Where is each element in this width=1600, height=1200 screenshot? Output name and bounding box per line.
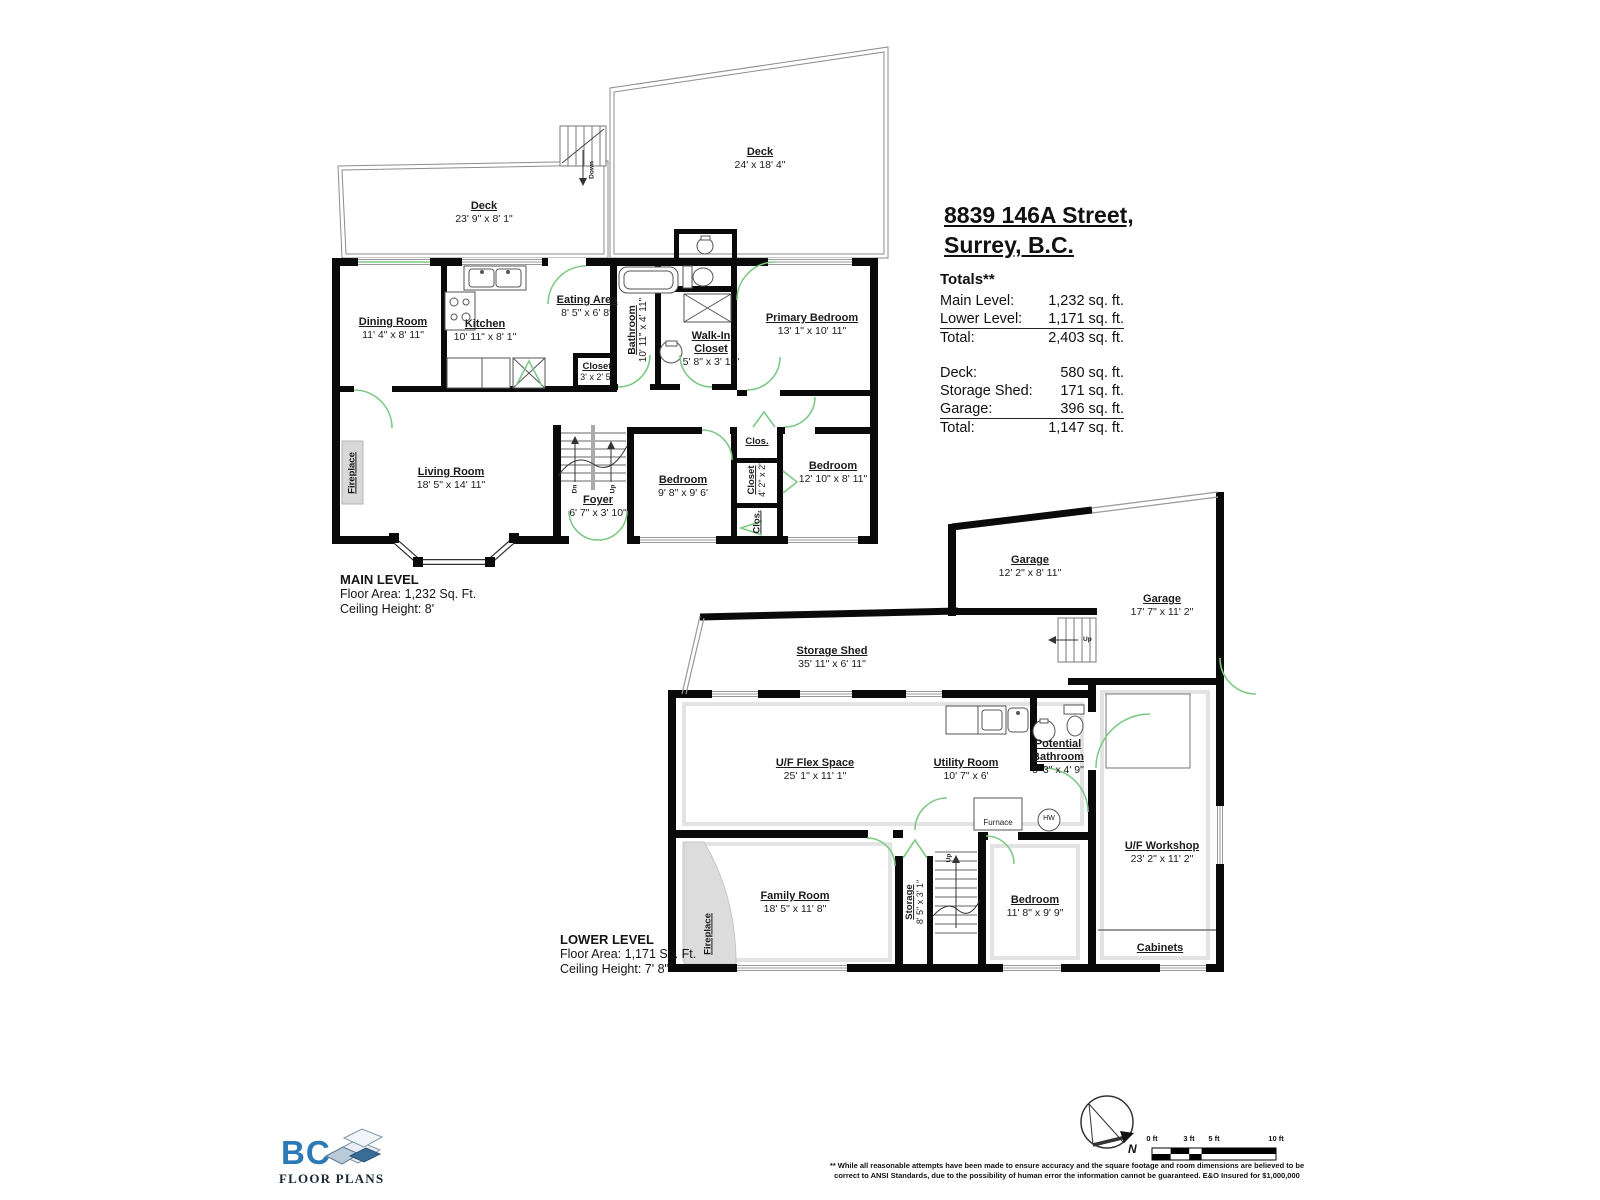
totals-row-deck: Deck:580 sq. ft. bbox=[940, 364, 1124, 382]
room-label-walkin: Walk-In Closet 5' 8" x 3' 11" bbox=[683, 330, 740, 368]
bay-window bbox=[389, 533, 519, 567]
room-label-bedroom2: Bedroom 9' 8" x 9' 6' bbox=[658, 474, 708, 499]
main-level-title-block: MAIN LEVEL Floor Area: 1,232 Sq. Ft. Cei… bbox=[340, 572, 476, 617]
totals-row-main: Main Level:1,232 sq. ft. bbox=[940, 292, 1124, 310]
main-deck-outlines bbox=[338, 47, 888, 258]
room-label-clos-bottom: Clos. bbox=[751, 510, 762, 533]
room-label-eating: Eating Area 8' 5" x 6' 8" bbox=[557, 294, 618, 319]
scale-label-3ft: 3 ft bbox=[1183, 1134, 1194, 1143]
totals-row-shed: Storage Shed:171 sq. ft. bbox=[940, 382, 1124, 400]
room-label-flex: U/F Flex Space 25' 1" x 11' 1" bbox=[776, 757, 854, 782]
room-label-fireplace-main: Fireplace bbox=[346, 452, 357, 494]
room-label-closet-vertical: Closet 4' 2" x 2' bbox=[746, 463, 768, 497]
totals-table: Totals** Main Level:1,232 sq. ft. Lower … bbox=[940, 271, 1124, 437]
room-label-primary: Primary Bedroom 13' 1" x 10' 11" bbox=[766, 312, 858, 337]
room-label-kitchen: Kitchen 10' 11" x 8' 1" bbox=[454, 318, 517, 343]
room-label-shed: Storage Shed 35' 11" x 6' 11" bbox=[797, 645, 868, 670]
address-line1: 8839 146A Street, bbox=[944, 200, 1134, 230]
floor-plan-page: 8839 146A Street, Surrey, B.C. Totals** … bbox=[0, 0, 1600, 1200]
scale-label-10ft: 10 ft bbox=[1268, 1134, 1283, 1143]
stairs-up-label-garage: Up bbox=[1083, 636, 1092, 643]
stairs-up-label-main: Up bbox=[610, 485, 617, 494]
scale-bar bbox=[1152, 1148, 1276, 1160]
totals-row-lower: Lower Level:1,171 sq. ft. bbox=[940, 310, 1124, 329]
totals-row-total2: Total:1,147 sq. ft. bbox=[940, 419, 1124, 437]
totals-row-garage: Garage:396 sq. ft. bbox=[940, 400, 1124, 419]
disclaimer-line2: correct to ANSI Standards, due to the po… bbox=[834, 1171, 1300, 1180]
main-level-floor-area: Floor Area: 1,232 Sq. Ft. bbox=[340, 587, 476, 602]
property-address: 8839 146A Street, Surrey, B.C. bbox=[944, 200, 1134, 260]
room-label-garage2: Garage 17' 7" x 11' 2" bbox=[1131, 593, 1194, 618]
room-label-dining: Dining Room 11' 4" x 8' 11" bbox=[359, 316, 427, 341]
main-level-ceiling: Ceiling Height: 8' bbox=[340, 602, 476, 617]
room-label-bathroom: Bathroom 10' 11" x 4' 11" bbox=[626, 298, 650, 362]
scale-label-5ft: 5 ft bbox=[1208, 1134, 1219, 1143]
room-label-closet-main: Closet 3' x 2' 5" bbox=[580, 361, 614, 383]
stairs-up-label-lower: Up bbox=[946, 854, 953, 863]
lower-level-title-block: LOWER LEVEL Floor Area: 1,171 Sq. Ft. Ce… bbox=[560, 932, 696, 977]
room-label-fireplace-lower: Fireplace bbox=[702, 913, 713, 955]
compass-n-label: N bbox=[1128, 1142, 1137, 1156]
totals-row-total1: Total:2,403 sq. ft. bbox=[940, 329, 1124, 347]
room-label-bedroom3: Bedroom 12' 10" x 8' 11" bbox=[799, 460, 867, 485]
furnace-label: Furnace bbox=[983, 818, 1012, 827]
room-label-bedroom4: Bedroom 11' 8" x 9' 9" bbox=[1007, 894, 1064, 919]
hw-tank-label: HW bbox=[1043, 815, 1055, 822]
main-stairs bbox=[558, 425, 627, 490]
room-label-clos-top: Clos. bbox=[745, 436, 768, 447]
room-label-living: Living Room 18' 5" x 14' 11" bbox=[417, 466, 485, 491]
lower-level-title: LOWER LEVEL bbox=[560, 932, 696, 947]
room-label-deck-large: Deck 24' x 18' 4" bbox=[735, 146, 786, 171]
lower-level-ceiling: Ceiling Height: 7' 8" bbox=[560, 962, 696, 977]
totals-heading: Totals** bbox=[940, 271, 1124, 288]
stairs-down-label: Down bbox=[589, 161, 596, 179]
room-label-storage: Storage 8' 5" x 3' 1" bbox=[904, 880, 926, 924]
room-label-utility: Utility Room 10' 7" x 6' bbox=[934, 757, 999, 782]
logo-bc-text: BC bbox=[281, 1134, 331, 1172]
room-label-potential-bathroom: Potential Bathroom 5' 3" x 4' 9" bbox=[1032, 738, 1084, 776]
room-label-foyer: Foyer 6' 7" x 3' 10" bbox=[569, 494, 627, 519]
main-level-title: MAIN LEVEL bbox=[340, 572, 476, 587]
room-label-cabinets: Cabinets bbox=[1137, 942, 1183, 955]
room-label-family: Family Room 18' 5" x 11' 8" bbox=[760, 890, 829, 915]
disclaimer-line1: ** While all reasonable attempts have be… bbox=[830, 1161, 1304, 1170]
logo-floorplans-text: FLOOR PLANS bbox=[279, 1171, 384, 1187]
lower-level-floor-area: Floor Area: 1,171 Sq. Ft. bbox=[560, 947, 696, 962]
address-line2: Surrey, B.C. bbox=[944, 230, 1134, 260]
stairs-dn-label: Dn bbox=[572, 485, 579, 494]
floor-plan-graphics bbox=[0, 0, 1600, 1200]
room-label-workshop: U/F Workshop 23' 2" x 11' 2" bbox=[1125, 840, 1199, 865]
room-label-deck-small: Deck 23' 9" x 8' 1" bbox=[455, 200, 513, 225]
north-arrow bbox=[1081, 1096, 1134, 1148]
main-fixtures bbox=[342, 236, 731, 504]
room-label-garage1: Garage 12' 2" x 8' 11" bbox=[999, 554, 1062, 579]
logo-iso-art bbox=[326, 1129, 382, 1164]
scale-label-0ft: 0 ft bbox=[1146, 1134, 1157, 1143]
